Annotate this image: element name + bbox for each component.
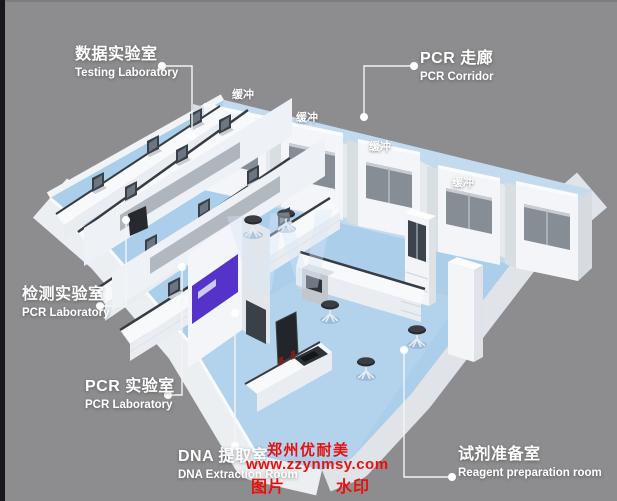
room-label-pcr-lab-en: PCR Laboratory (85, 399, 175, 411)
east-corner-wall (578, 190, 592, 281)
buffer-room-label-1: 缓冲 (232, 86, 254, 102)
room-label-reagent-prep-zh: 试剂准备室 (458, 447, 602, 464)
watermark-url: www.zzynmsy.com (246, 456, 389, 473)
room-label-testing-zh: 数据实验室 (75, 47, 178, 64)
support-column (448, 257, 483, 362)
room-label-pcr-corridor-zh: PCR 走廊 (420, 51, 493, 68)
watermark-tag-picture: 图片 (251, 473, 285, 497)
buffer-room-label-3: 缓冲 (369, 138, 391, 154)
room-label-pcr-lab-zh: PCR 实验室 (85, 379, 175, 396)
room-label-reagent-prep-en: Reagent preparation room (458, 467, 602, 479)
watermark-tag-stamp: 水印 (336, 473, 370, 497)
room-label-pcr-lab: PCR 实验室 PCR Laboratory (85, 379, 175, 411)
room-label-reagent-prep: 试剂准备室 Reagent preparation room (458, 447, 602, 479)
room-label-detection-zh: 检测实验室 (22, 287, 110, 304)
room-label-pcr-corridor: PCR 走廊 PCR Corridor (420, 51, 493, 83)
room-label-testing-en: Testing Laboratory (75, 67, 178, 79)
lab-floorplan-screenshot: { "scene": { "description": "3D isometri… (0, 0, 617, 501)
left-edge-strip (0, 0, 5, 501)
room-label-testing: 数据实验室 Testing Laboratory (75, 47, 178, 79)
room-label-detection-en: PCR Laboratory (22, 307, 110, 319)
room-label-detection: 检测实验室 PCR Laboratory (22, 287, 110, 319)
faint-logo-watermark: W (225, 185, 339, 317)
room-label-pcr-corridor-en: PCR Corridor (420, 71, 493, 83)
top-edge-line (0, 0, 617, 2)
buffer-room-label-2: 缓冲 (296, 109, 318, 125)
buffer-room-label-4: 缓冲 (452, 174, 474, 190)
